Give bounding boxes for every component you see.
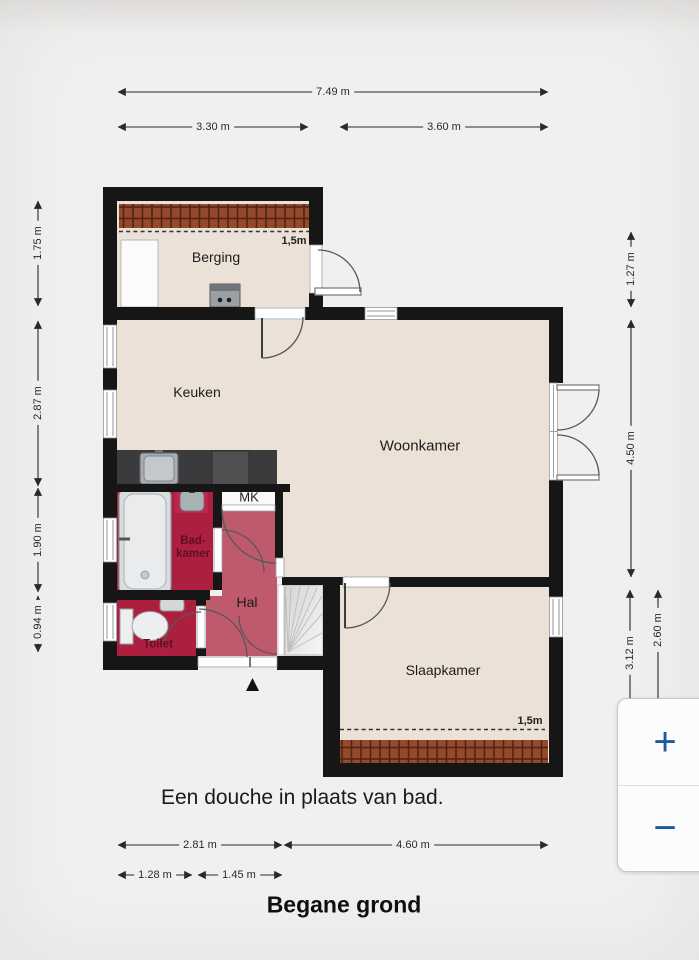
room-label-toilet: Toilet <box>143 639 173 652</box>
bathroom-basin-icon <box>175 489 208 513</box>
room-label-woonkamer: Woonkamer <box>380 439 461 456</box>
room-label-mk: MK <box>239 491 259 506</box>
window-toilet <box>104 603 117 641</box>
floorplan-viewer: Berging Keuken Woonkamer Slaapkamer Hal … <box>0 0 699 960</box>
dim-right-middle: 4.50 m <box>623 426 639 470</box>
dim-right-inner: 2.60 m <box>650 608 666 652</box>
dim-bottom-seg-left: 1.28 m <box>134 869 176 881</box>
sill-voordeur <box>198 657 277 667</box>
bathtub-icon <box>119 489 171 594</box>
room-label-keuken: Keuken <box>173 385 220 401</box>
dim-bottom-right-total: 4.60 m <box>392 839 434 851</box>
window-badkamer <box>104 518 117 562</box>
badkamer-label-line1: Bad- <box>176 535 210 548</box>
dim-top-right: 3.60 m <box>423 121 465 133</box>
minus-icon: − <box>653 808 676 848</box>
headroom-label-berging: 1,5m <box>281 235 306 247</box>
zoom-out-button[interactable]: − <box>618 786 699 872</box>
dim-left-lower: 1.90 m <box>30 518 46 562</box>
renovation-note: Een douche in plaats van bad. <box>161 786 444 810</box>
hand-basin-icon <box>160 599 184 611</box>
sill-slaapkamer <box>343 577 389 587</box>
kitchen-counter <box>117 450 277 487</box>
entrance-arrow-icon <box>246 678 259 691</box>
zoom-controls: + − <box>617 698 699 872</box>
window-keuken-1 <box>104 325 117 368</box>
dim-right-top: 1.27 m <box>623 247 639 291</box>
dim-top-left: 3.30 m <box>192 121 234 133</box>
cabinet-icon <box>121 240 158 307</box>
dim-left-top: 1.75 m <box>30 221 46 265</box>
zoom-in-button[interactable]: + <box>618 699 699 785</box>
dim-left-bottom: 0.94 m <box>30 600 46 644</box>
sill-badkamer <box>214 528 222 572</box>
room-label-slaapkamer: Slaapkamer <box>406 663 481 679</box>
sill-mk <box>222 505 275 511</box>
window-zijgevel <box>365 308 397 320</box>
dim-bottom-left-total: 2.81 m <box>179 839 221 851</box>
window-slaapkamer <box>550 597 563 637</box>
window-keuken-2 <box>104 390 117 438</box>
dim-top-total: 7.49 m <box>312 86 354 98</box>
sill-berging-keuken <box>255 308 305 319</box>
french-doors-woonkamer <box>550 383 600 480</box>
dim-right-lower: 3.12 m <box>622 631 638 675</box>
sill-hal-woonkamer <box>276 558 284 577</box>
room-label-hal: Hal <box>236 595 257 611</box>
stairs-icon <box>278 585 323 655</box>
sill-berging-exterior <box>310 245 322 293</box>
roof-hatch-berging <box>119 204 311 232</box>
floorplan-drawing <box>0 0 699 960</box>
dim-left-middle: 2.87 m <box>30 381 46 425</box>
boiler-icon <box>210 284 240 307</box>
floorplan-canvas[interactable]: Berging Keuken Woonkamer Slaapkamer Hal … <box>0 0 699 960</box>
page-title: Begane grond <box>267 892 422 919</box>
room-label-badkamer: Bad- kamer <box>176 535 210 561</box>
badkamer-label-line2: kamer <box>176 548 210 561</box>
plus-icon: + <box>653 722 676 762</box>
headroom-label-slaapkamer: 1,5m <box>517 715 542 727</box>
dim-bottom-seg-right: 1.45 m <box>218 869 260 881</box>
room-label-berging: Berging <box>192 250 240 266</box>
